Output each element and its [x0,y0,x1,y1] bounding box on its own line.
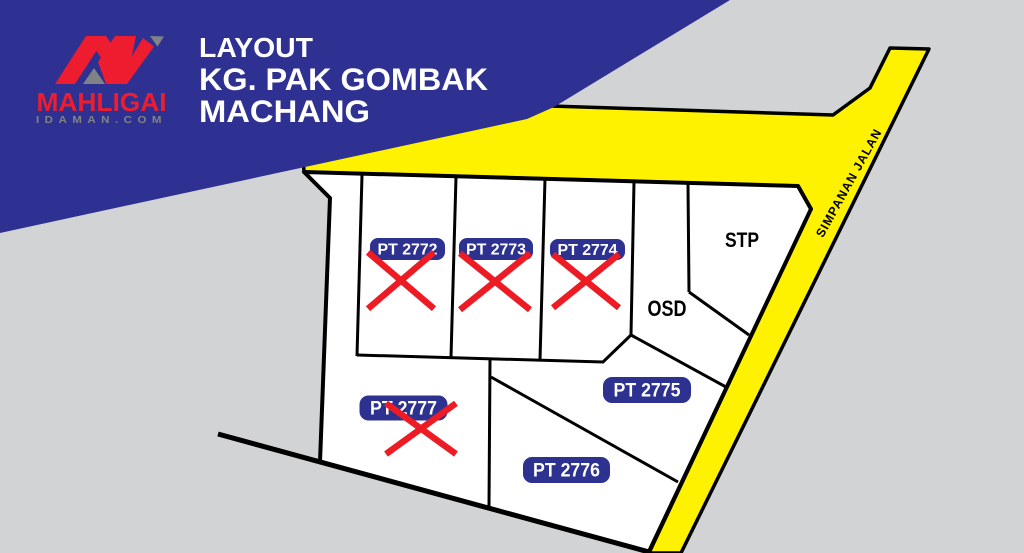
svg-text:KG. PAK GOMBAK: KG. PAK GOMBAK [199,61,488,97]
svg-text:PT 2773: PT 2773 [466,242,526,259]
svg-text:LAYOUT: LAYOUT [199,32,313,63]
svg-text:PT 2775: PT 2775 [614,380,681,402]
svg-text:IDAMAN.COM: IDAMAN.COM [36,114,167,126]
svg-text:STP: STP [725,229,759,252]
svg-text:MAHLIGAI: MAHLIGAI [37,87,167,117]
svg-text:MACHANG: MACHANG [199,93,370,129]
svg-text:PT 2776: PT 2776 [533,460,600,482]
svg-text:OSD: OSD [648,296,687,321]
svg-text:PT 2774: PT 2774 [558,242,618,259]
